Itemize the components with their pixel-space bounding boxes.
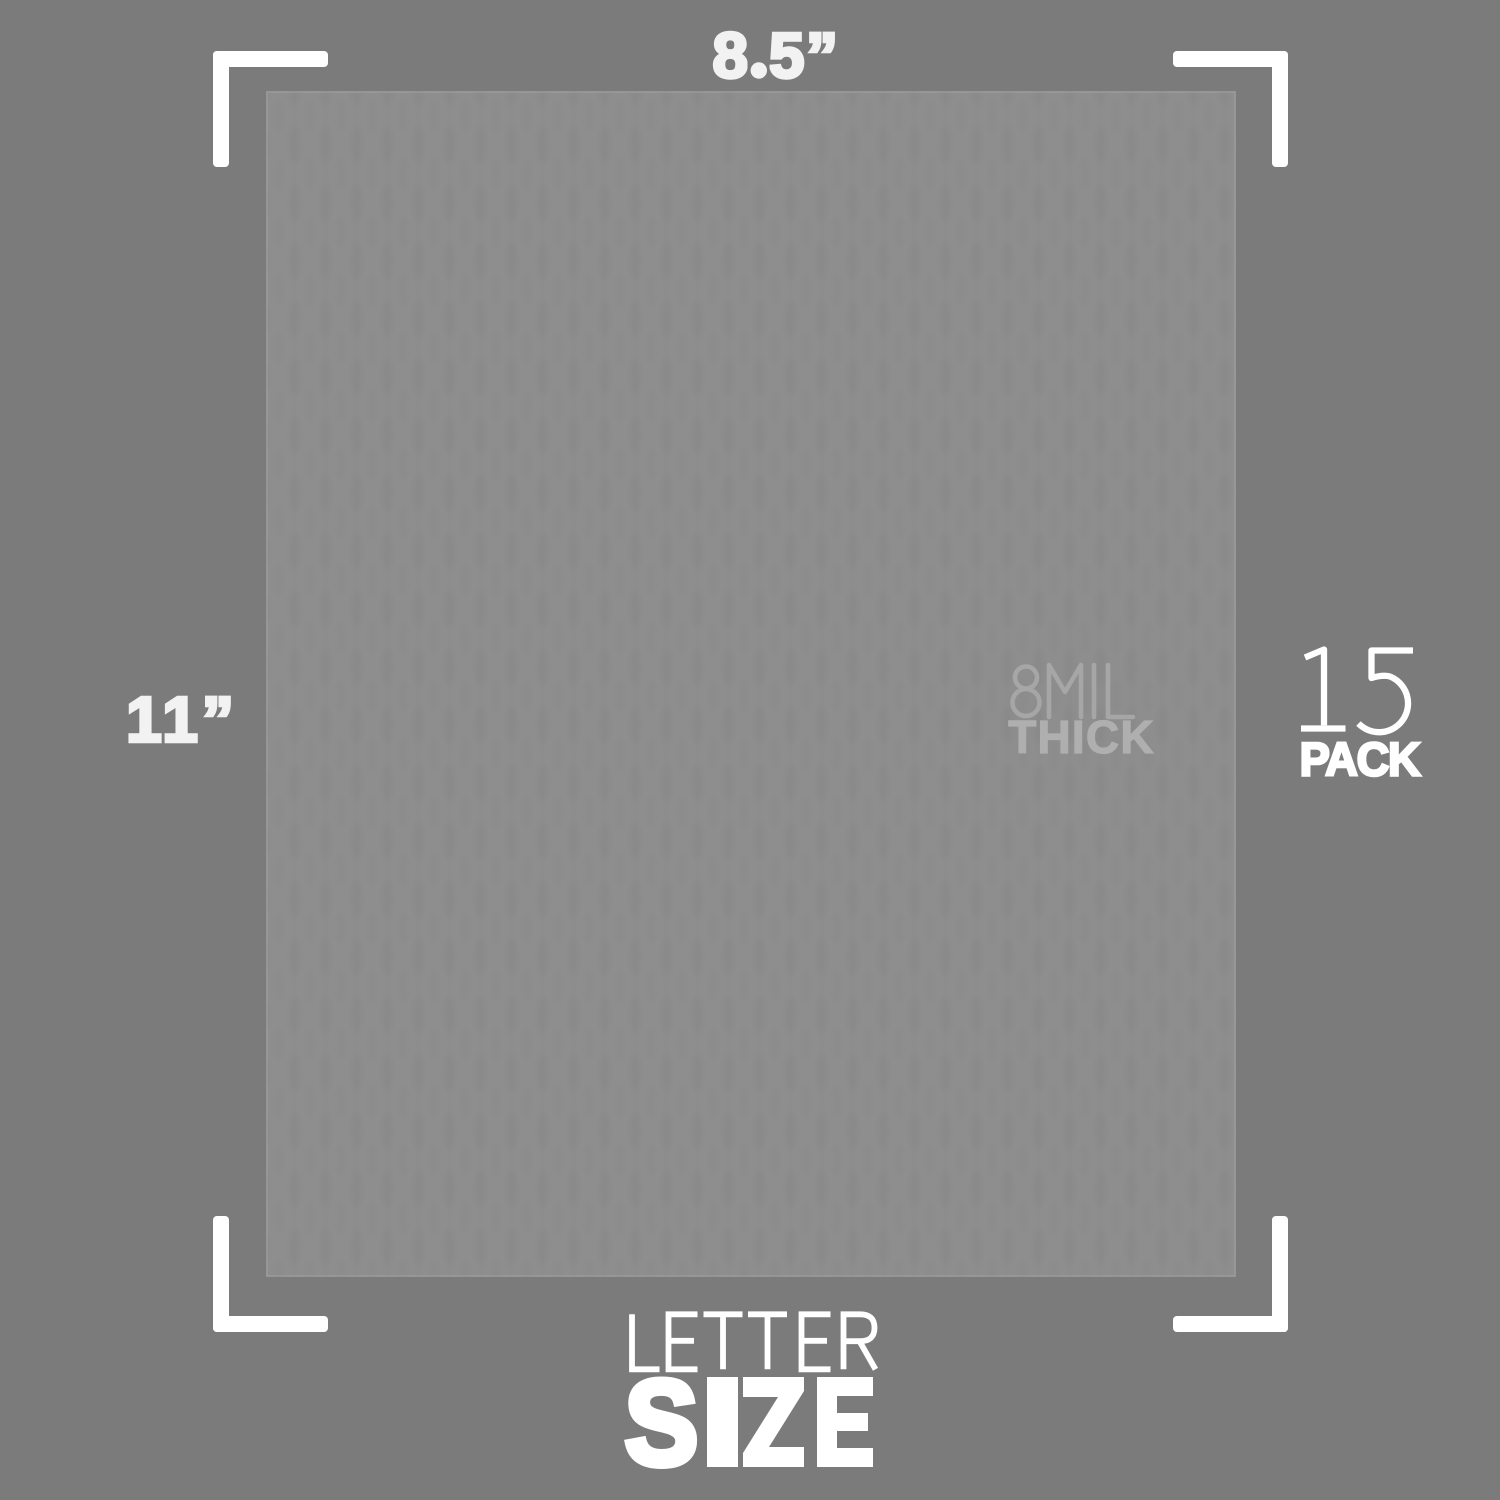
svg-text:S: S xyxy=(625,1355,698,1491)
svg-text:11”: 11” xyxy=(126,684,238,756)
svg-text:8.5”: 8.5” xyxy=(713,20,840,92)
svg-text:THICK: THICK xyxy=(1008,711,1155,763)
svg-text:PACK: PACK xyxy=(1300,733,1422,786)
